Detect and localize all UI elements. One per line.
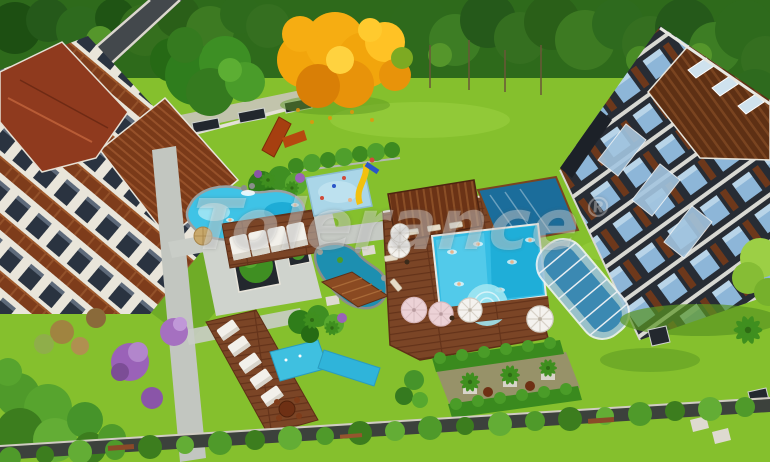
render-scene [0,0,770,462]
dining-table [279,401,295,417]
render-image: Tolerance® [0,0,770,462]
waterfall-foam [241,190,255,196]
